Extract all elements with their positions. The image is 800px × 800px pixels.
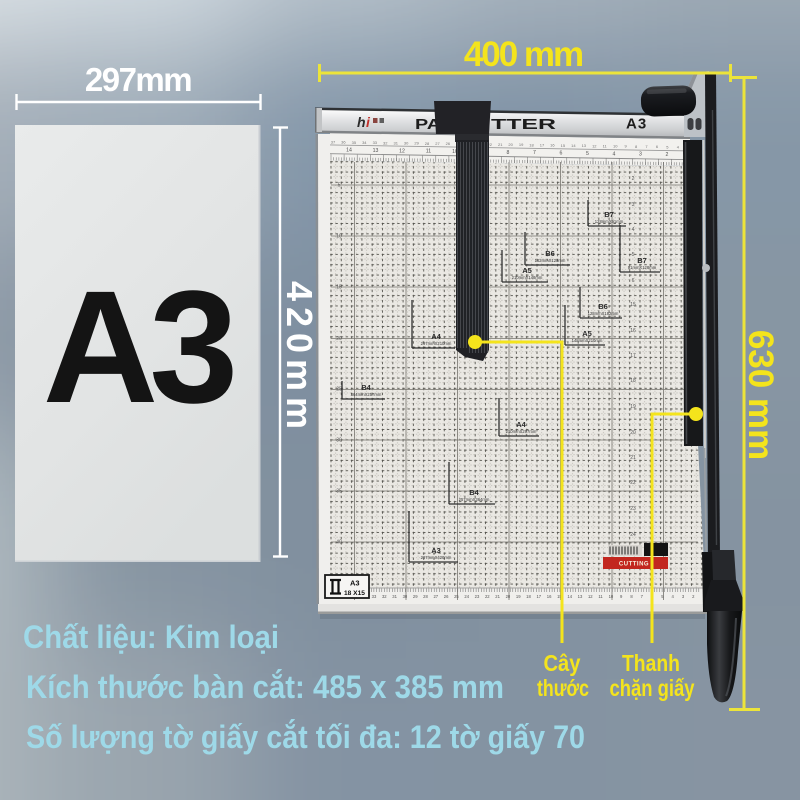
svg-text:25: 25 [336, 387, 342, 393]
svg-text:30: 30 [404, 141, 409, 146]
svg-text:25: 25 [454, 594, 459, 599]
svg-text:A3: A3 [626, 116, 647, 133]
svg-text:23: 23 [475, 594, 480, 599]
svg-text:364mmX257mm: 364mmX257mm [351, 392, 382, 397]
svg-text:B7: B7 [604, 210, 614, 219]
svg-text:B6: B6 [598, 302, 608, 311]
svg-text:Số lượng tờ giấy cắt tối đa: 1: Số lượng tờ giấy cắt tối đa: 12 tờ giấy … [26, 719, 585, 755]
svg-text:36: 36 [341, 140, 346, 145]
svg-text:19: 19 [516, 594, 521, 599]
svg-text:13: 13 [578, 594, 583, 599]
svg-text:2: 2 [632, 176, 635, 182]
svg-text:23: 23 [630, 506, 636, 512]
svg-text:A5: A5 [582, 329, 592, 338]
svg-text:11: 11 [426, 149, 431, 155]
svg-text:10: 10 [336, 234, 342, 240]
svg-text:h: h [357, 114, 366, 130]
svg-text:8: 8 [507, 150, 510, 156]
svg-text:17: 17 [630, 353, 636, 359]
svg-text:27: 27 [433, 594, 438, 599]
svg-text:210mmX148mm: 210mmX148mm [512, 275, 543, 280]
svg-text:30: 30 [403, 594, 408, 599]
svg-text:TTER: TTER [491, 116, 556, 133]
svg-text:420mm: 420mm [279, 281, 320, 435]
svg-text:28: 28 [425, 141, 430, 146]
svg-text:15: 15 [561, 143, 566, 148]
svg-text:17: 17 [540, 143, 545, 148]
svg-text:20: 20 [630, 430, 636, 436]
svg-text:Kích thước bàn cắt: 485 x 385: Kích thước bàn cắt: 485 x 385 mm [26, 669, 504, 705]
svg-text:148mmX210mm: 148mmX210mm [572, 338, 603, 343]
svg-text:5: 5 [632, 252, 635, 258]
svg-text:15: 15 [630, 302, 636, 308]
svg-text:6: 6 [560, 151, 563, 157]
svg-text:2: 2 [666, 152, 669, 158]
svg-text:400 mm: 400 mm [464, 35, 582, 74]
svg-text:A3: A3 [43, 257, 234, 436]
svg-text:29: 29 [414, 141, 419, 146]
svg-text:12: 12 [399, 148, 405, 154]
svg-text:35: 35 [352, 140, 357, 145]
svg-text:32: 32 [383, 140, 388, 145]
svg-text:11: 11 [598, 594, 603, 599]
svg-text:30: 30 [336, 438, 342, 444]
svg-text:18: 18 [630, 378, 636, 384]
svg-text:14: 14 [346, 148, 352, 154]
svg-text:16: 16 [550, 143, 555, 148]
svg-text:B6: B6 [545, 249, 555, 258]
svg-text:16: 16 [630, 328, 636, 334]
svg-text:128mmX91mm: 128mmX91mm [595, 219, 624, 224]
svg-text:3: 3 [639, 152, 642, 158]
svg-text:21: 21 [630, 455, 636, 461]
svg-text:21: 21 [495, 594, 500, 599]
svg-text:B4: B4 [469, 488, 479, 497]
svg-text:297mmX420mm: 297mmX420mm [421, 555, 452, 560]
svg-text:257mmX364mm: 257mmX364mm [459, 497, 490, 502]
svg-text:34: 34 [362, 140, 367, 145]
svg-text:33: 33 [372, 594, 377, 599]
svg-text:10: 10 [613, 144, 618, 149]
svg-text:A5: A5 [522, 266, 532, 275]
svg-text:28: 28 [423, 594, 428, 599]
svg-text:22: 22 [485, 594, 490, 599]
svg-text:B7: B7 [637, 256, 647, 265]
svg-text:630 mm: 630 mm [741, 330, 780, 460]
svg-text:chặn giấy: chặn giấy [610, 675, 695, 701]
svg-text:A4: A4 [431, 332, 441, 341]
svg-text:15: 15 [336, 285, 342, 291]
svg-text:7: 7 [533, 150, 536, 156]
svg-text:24: 24 [630, 532, 636, 538]
svg-text:26: 26 [444, 594, 449, 599]
svg-text:31: 31 [392, 594, 397, 599]
svg-text:16: 16 [547, 594, 552, 599]
svg-text:32: 32 [382, 594, 387, 599]
svg-text:33: 33 [373, 140, 378, 145]
svg-text:14: 14 [571, 143, 576, 148]
svg-text:20: 20 [508, 142, 513, 147]
svg-text:4: 4 [632, 227, 635, 233]
svg-text:297mmX210mm: 297mmX210mm [421, 341, 452, 346]
svg-text:13: 13 [373, 148, 379, 154]
svg-text:18: 18 [526, 594, 531, 599]
svg-text:35: 35 [336, 489, 342, 495]
svg-text:A4: A4 [516, 420, 526, 429]
svg-text:17: 17 [536, 594, 541, 599]
svg-text:A3: A3 [431, 546, 441, 555]
svg-text:128mmX182mm: 128mmX182mm [588, 311, 619, 316]
svg-text:37: 37 [331, 140, 336, 145]
svg-text:40: 40 [336, 540, 342, 546]
svg-text:thước: thước [537, 675, 589, 701]
svg-text:29: 29 [413, 594, 418, 599]
svg-text:19: 19 [519, 142, 524, 147]
svg-text:4: 4 [613, 151, 616, 157]
svg-text:3: 3 [632, 202, 635, 208]
svg-text:31: 31 [393, 140, 398, 145]
svg-text:14: 14 [567, 594, 572, 599]
svg-text:10: 10 [609, 594, 614, 599]
svg-text:CUTTING: CUTTING [619, 562, 649, 568]
svg-text:Thanh: Thanh [622, 650, 680, 676]
svg-text:6: 6 [632, 278, 635, 284]
svg-text:5: 5 [338, 183, 341, 189]
svg-text:19: 19 [630, 404, 636, 410]
svg-text:20: 20 [506, 594, 511, 599]
svg-text:26: 26 [446, 141, 451, 146]
svg-text:24: 24 [464, 594, 469, 599]
svg-text:22: 22 [630, 480, 636, 486]
svg-text:13: 13 [582, 143, 587, 148]
svg-text:18: 18 [529, 142, 534, 147]
svg-text:A3: A3 [350, 579, 360, 588]
svg-text:21: 21 [498, 142, 503, 147]
svg-text:5: 5 [586, 151, 589, 157]
svg-text:Chất liệu: Kim loại: Chất liệu: Kim loại [23, 619, 279, 655]
svg-text:27: 27 [435, 141, 440, 146]
svg-text:182mmX128mm: 182mmX128mm [535, 258, 566, 263]
svg-text:210mmX297mm: 210mmX297mm [506, 429, 537, 434]
svg-text:18 X15: 18 X15 [344, 590, 365, 597]
svg-text:Cây: Cây [544, 650, 581, 676]
svg-text:12: 12 [592, 143, 597, 148]
svg-text:12: 12 [588, 594, 593, 599]
svg-text:91mmX128mm: 91mmX128mm [628, 265, 657, 270]
svg-text:20: 20 [336, 336, 342, 342]
svg-text:B4: B4 [361, 383, 371, 392]
svg-text:297mm: 297mm [85, 61, 191, 98]
